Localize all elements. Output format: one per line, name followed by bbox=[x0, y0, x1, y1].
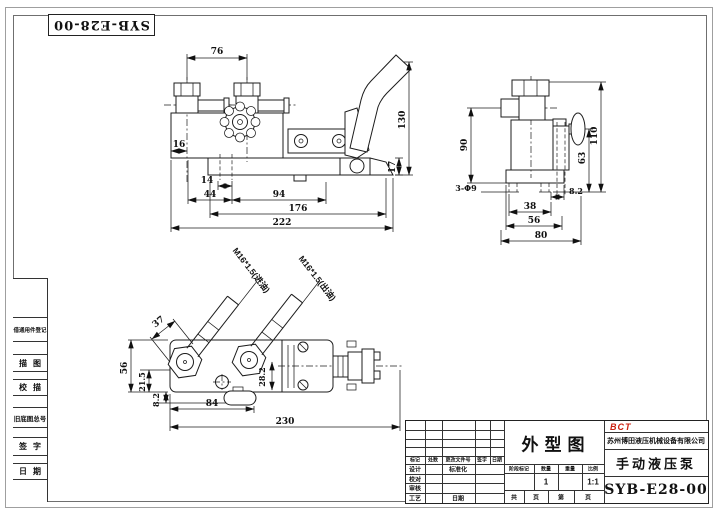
weight-header: 重量 bbox=[565, 465, 575, 472]
dim-94: 94 bbox=[273, 190, 286, 200]
qty-header: 数量 bbox=[541, 465, 551, 472]
dim-8_2-top: 8.2 bbox=[151, 393, 161, 407]
dim-56-top: 56 bbox=[120, 362, 130, 375]
title-stage-table: 外型图 阶段标记 数量 重量 比例 1 1:1 共 页 第 页 bbox=[504, 421, 604, 503]
role-check: 校对 bbox=[409, 475, 421, 484]
rev-header-mark: 标记 bbox=[410, 457, 420, 464]
stage-header: 阶段标记 bbox=[509, 465, 529, 472]
side-view: 90 110 63 3-Φ9 8.2 38 bbox=[455, 76, 606, 245]
dim-16: 16 bbox=[173, 140, 186, 150]
dim-holes-3xd9: 3-Φ9 bbox=[455, 183, 477, 193]
dim-63: 63 bbox=[578, 152, 588, 165]
sheet-total-label: 共 bbox=[511, 492, 517, 501]
dim-14: 14 bbox=[201, 176, 214, 186]
label-date: 日期 bbox=[452, 494, 464, 503]
dim-8_2-side: 8.2 bbox=[569, 186, 583, 196]
label-inlet-thread: M16*1.5(进油) bbox=[231, 246, 272, 295]
sheet-page-label: 页 bbox=[533, 492, 539, 501]
star-knob bbox=[220, 102, 260, 142]
front-view: 76 16 14 44 94 176 222 bbox=[164, 47, 413, 232]
rev-header-sign: 签字 bbox=[477, 457, 487, 464]
drawing-title: 外型图 bbox=[522, 431, 591, 456]
sheet-page-label-2: 页 bbox=[585, 492, 591, 501]
rev-header-count: 处数 bbox=[428, 457, 438, 464]
drawing-number: SYB-E28-00 bbox=[604, 482, 707, 498]
dim-21_5: 21.5 bbox=[137, 372, 147, 391]
scale-header: 比例 bbox=[588, 465, 598, 472]
rev-header-doc-no: 更改文件号 bbox=[445, 457, 470, 464]
dim-37: 37 bbox=[151, 315, 167, 331]
role-audit: 审核 bbox=[409, 484, 421, 493]
dim-90: 90 bbox=[460, 139, 470, 152]
rev-header-date: 日期 bbox=[492, 457, 502, 464]
engineering-drawing-sheet: SYB-E28-00 借通用件登记 描图 校描 旧底图总号 签字 日期 bbox=[0, 0, 720, 517]
sheet-no-label: 第 bbox=[558, 492, 564, 501]
revision-signature-table: 标记 处数 更改文件号 签字 日期 设计 校对 审核 工艺 标准化 日期 bbox=[406, 421, 504, 503]
top-view: M16*1.5(进油) M16*1.5(出油) 37 bbox=[120, 246, 402, 431]
dim-110: 110 bbox=[590, 127, 600, 146]
dim-38: 38 bbox=[524, 202, 537, 212]
company-section: BCT 苏州博田液压机械设备有限公司 手动液压泵 SYB-E28-00 bbox=[604, 421, 708, 503]
company-name: 苏州博田液压机械设备有限公司 bbox=[607, 436, 705, 446]
role-process: 工艺 bbox=[409, 494, 421, 503]
dim-176: 176 bbox=[289, 204, 308, 214]
dim-84: 84 bbox=[206, 399, 219, 409]
scale-value: 1:1 bbox=[587, 477, 599, 486]
product-name: 手动液压泵 bbox=[616, 453, 696, 472]
dim-130: 130 bbox=[398, 111, 408, 130]
dim-56-side: 56 bbox=[528, 216, 541, 226]
qty-value: 1 bbox=[544, 477, 548, 486]
role-design: 设计 bbox=[409, 465, 421, 474]
title-block: 标记 处数 更改文件号 签字 日期 设计 校对 审核 工艺 标准化 日期 外型图… bbox=[405, 420, 709, 504]
dim-80: 80 bbox=[535, 231, 548, 241]
label-standardization: 标准化 bbox=[449, 465, 467, 474]
dim-222: 222 bbox=[273, 218, 292, 228]
label-outlet-thread: M16*1.5(出油) bbox=[297, 254, 338, 303]
dim-230: 230 bbox=[276, 417, 295, 427]
dim-28_2: 28.2 bbox=[257, 367, 267, 386]
dim-76: 76 bbox=[211, 47, 224, 57]
dim-17: 17 bbox=[388, 161, 398, 174]
hand-lever bbox=[350, 55, 411, 152]
company-logo: BCT bbox=[610, 422, 632, 432]
